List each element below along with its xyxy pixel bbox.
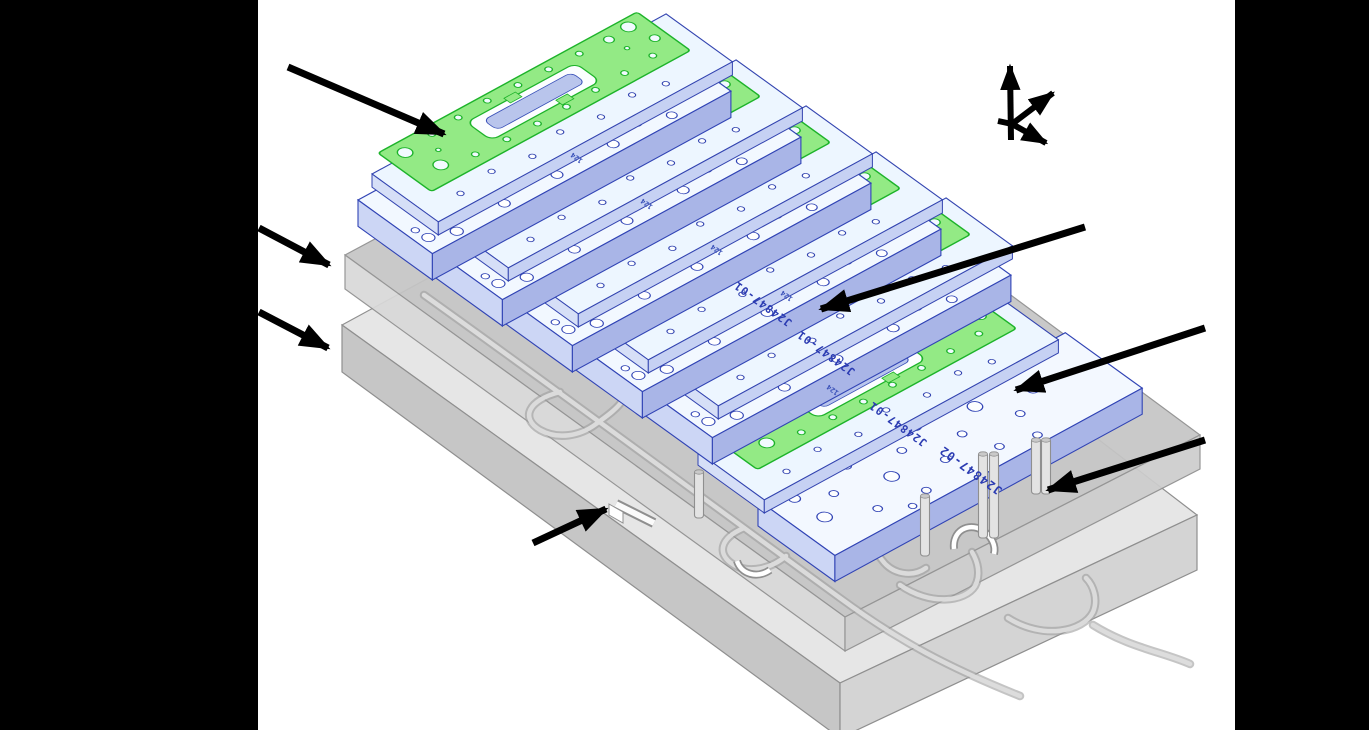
right-mask-bar <box>1235 0 1369 730</box>
axis-origin-stub <box>998 121 1012 124</box>
left-mask-bar <box>0 0 258 730</box>
cad-drawing-canvas: J24847-01 J24847-01 J24847-01 J24847-02 … <box>0 0 1369 730</box>
cad-figure: J24847-01 J24847-01 J24847-01 J24847-02 … <box>0 0 1369 730</box>
axis-arrow-up <box>1010 66 1011 140</box>
